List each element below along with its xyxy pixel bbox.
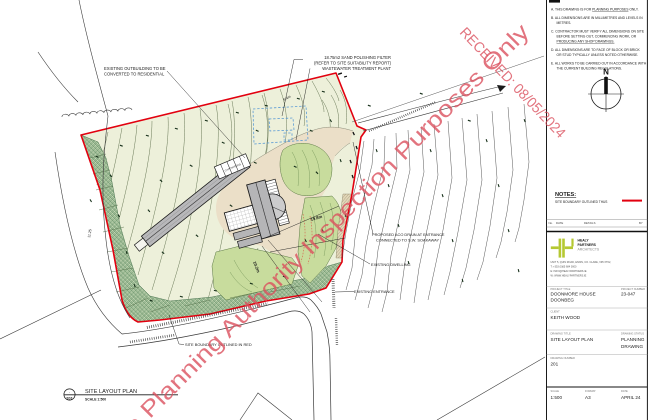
svg-text:THE CURRENT BUILDING REGULATIO: THE CURRENT BUILDING REGULATIONS.: [557, 67, 623, 71]
svg-text:ARCHITECTS: ARCHITECTS: [578, 248, 600, 252]
svg-text:DRAWING STATUS: DRAWING STATUS: [621, 332, 644, 336]
svg-text:23-047: 23-047: [621, 292, 636, 297]
svg-text:SITE LAYOUT PLAN: SITE LAYOUT PLAN: [551, 337, 594, 342]
svg-text:NOTES:: NOTES:: [555, 192, 576, 198]
svg-text:N: N: [603, 68, 609, 77]
svg-text:SITE LAYOUT PLAN: SITE LAYOUT PLAN: [85, 389, 137, 395]
svg-text:A3: A3: [585, 395, 591, 400]
svg-text:No.: No.: [549, 221, 554, 225]
svg-text:CONNECTED TO S.W. SOAKAWAY: CONNECTED TO S.W. SOAKAWAY: [376, 238, 439, 243]
svg-text:201: 201: [66, 396, 73, 401]
svg-text:W: WWW.HEALYPARTNERS.IE: W: WWW.HEALYPARTNERS.IE: [551, 275, 587, 278]
svg-text:PRODUCING ANY SHOP DRAWINGS.: PRODUCING ANY SHOP DRAWINGS.: [557, 40, 615, 44]
svg-text:1:500: 1:500: [551, 395, 563, 400]
svg-text:18.75m2 SAND POLISHING FILTER: 18.75m2 SAND POLISHING FILTER: [324, 55, 391, 60]
svg-text:METRES.: METRES.: [557, 21, 572, 25]
svg-text:-: -: [69, 390, 70, 394]
svg-text:PROJECT NUMBER: PROJECT NUMBER: [621, 287, 645, 291]
svg-text:EXISTING OUTBUILDING TO BE: EXISTING OUTBUILDING TO BE: [104, 66, 166, 71]
svg-text:SCALE 1:500: SCALE 1:500: [85, 398, 106, 402]
svg-text:FORMAT: FORMAT: [585, 389, 596, 393]
svg-text:HEALY: HEALY: [578, 239, 590, 243]
svg-text:DRAWING: DRAWING: [621, 344, 643, 349]
svg-text:CLIENT: CLIENT: [551, 310, 561, 314]
svg-text:SCALE: SCALE: [551, 389, 560, 393]
svg-text:PROPOSED ACO DRAIN AT ENTRANCE: PROPOSED ACO DRAIN AT ENTRANCE: [372, 232, 445, 237]
svg-text:T: +353 (0)65 684 0000: T: +353 (0)65 684 0000: [551, 266, 578, 269]
svg-text:KEITH WOOD: KEITH WOOD: [551, 315, 581, 320]
svg-text:C. CONTRACTOR MUST VERIFY ALL: C. CONTRACTOR MUST VERIFY ALL DIMENSIONS…: [551, 30, 645, 34]
svg-text:DRAWING TITLE: DRAWING TITLE: [551, 332, 571, 336]
svg-text:APRIL 24: APRIL 24: [621, 395, 641, 400]
svg-text:EXISTING ENTRANCE: EXISTING ENTRANCE: [354, 289, 395, 294]
svg-text:PROJECT TITLE: PROJECT TITLE: [551, 287, 571, 291]
svg-text:PARTNERS: PARTNERS: [578, 243, 597, 247]
svg-text:BEFORE SETTING OUT, COMMENCING: BEFORE SETTING OUT, COMMENCING WORK, OR: [557, 35, 637, 39]
svg-text:E. ALL WORKS TO BE CARRIED OU: E. ALL WORKS TO BE CARRIED OUT IN ACCORD…: [551, 62, 647, 66]
svg-text:DATE: DATE: [556, 221, 563, 225]
svg-text:DATE: DATE: [621, 389, 628, 393]
svg-text:DRAWING NUMBER: DRAWING NUMBER: [551, 356, 576, 360]
svg-text:OR STUD TYPICALLY UNLESS NOTED: OR STUD TYPICALLY UNLESS NOTED OTHERWISE…: [557, 53, 639, 57]
svg-text:(REFER TO SITE SUITABILITY REP: (REFER TO SITE SUITABILITY REPORT): [314, 61, 392, 66]
svg-text:E: INFO@HEALYPARTNERS.IE: E: INFO@HEALYPARTNERS.IE: [551, 270, 587, 273]
svg-text:B. ALL DIMENSIONS ARE IN MILL: B. ALL DIMENSIONS ARE IN MILLIMETRES AND…: [551, 16, 643, 20]
svg-text:WASTEWATER TREATMENT PLANT: WASTEWATER TREATMENT PLANT: [322, 66, 391, 71]
svg-text:DOONBEG: DOONBEG: [551, 298, 575, 303]
svg-text:DOONMORE HOUSE: DOONMORE HOUSE: [551, 292, 596, 297]
svg-text:201: 201: [551, 362, 559, 367]
svg-text:PLANNING: PLANNING: [621, 337, 645, 342]
svg-text:D. ALL DIMENSIONS ARE TO FACE: D. ALL DIMENSIONS ARE TO FACE OF BLOCK O…: [551, 48, 641, 52]
svg-text:UNIT 5, QUIN ROAD, ENNIS, CO.: UNIT 5, QUIN ROAD, ENNIS, CO. CLARE, V95…: [551, 261, 612, 264]
svg-text:BY: BY: [639, 221, 643, 225]
svg-text:11.25: 11.25: [87, 229, 92, 238]
svg-text:DETAILS: DETAILS: [584, 221, 596, 225]
svg-text:EXISTING DWELLING: EXISTING DWELLING: [371, 262, 411, 267]
svg-text:CONVERTED TO RESIDENTIAL: CONVERTED TO RESIDENTIAL: [104, 72, 165, 77]
svg-text:SITE BOUNDARY OUTLINED THUS: SITE BOUNDARY OUTLINED THUS: [555, 200, 607, 204]
svg-text:A. THIS DRAWING IS FOR PLANNI: A. THIS DRAWING IS FOR PLANNING PURPOSES…: [551, 8, 639, 12]
